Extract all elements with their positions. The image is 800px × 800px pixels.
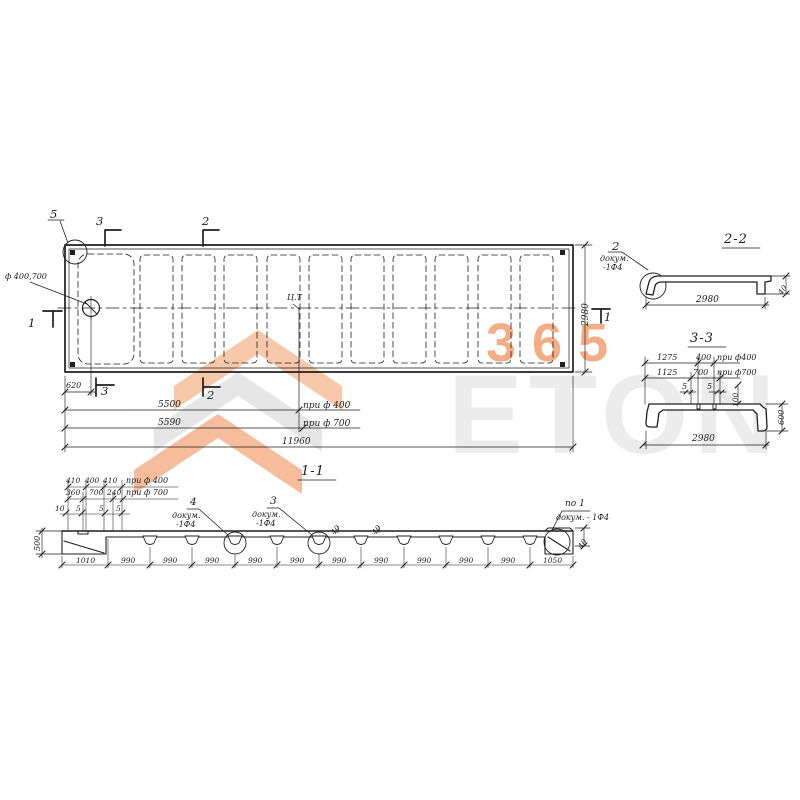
dim-240: 240 [107, 488, 121, 497]
callout-4-num: 4 [190, 496, 197, 508]
dim-990-2: 990 [163, 556, 177, 565]
centre-of-gravity-label: Ц.Т [287, 293, 302, 302]
section-mark-2-bottom: 2 [207, 388, 214, 402]
callout-3-line2: -1Ф4 [256, 519, 276, 528]
corner-anchors [70, 250, 565, 367]
note-700-s33: при ф700 [717, 368, 757, 377]
dim-2980-plan: 2980 [581, 303, 591, 326]
callout-2-line2: -1Ф4 [603, 263, 623, 272]
section-mark-3-bottom: 3 [101, 384, 108, 398]
dim-1010: 1010 [76, 556, 95, 565]
dim-990-7: 990 [374, 556, 388, 565]
dim-700-s11: 700 [89, 488, 103, 497]
dim-990-10: 990 [501, 556, 515, 565]
dim-990-4: 990 [248, 556, 262, 565]
dim-990-6: 990 [332, 556, 346, 565]
dim-620: 620 [66, 381, 81, 390]
dim-360: 360 [66, 488, 80, 497]
note-400-s33: при ф400 [717, 353, 757, 362]
dim-11960: 11960 [282, 437, 311, 447]
plan-view [30, 220, 610, 452]
dim-slot-b: 5 [707, 382, 712, 391]
hole-diameter-label: ф 400,700 [5, 272, 47, 281]
dim-400-a: 400 [85, 476, 99, 485]
dim-note-700: при ф 700 [303, 419, 350, 429]
section-mark-1-left: 1 [28, 316, 35, 330]
drawing-sheet: 365 ETON [0, 0, 800, 800]
dim-100: 100 [731, 393, 740, 407]
section-title-2-2: 2-2 [724, 232, 748, 247]
dim-5-c: 5 [116, 504, 121, 513]
dim-500: 500 [33, 536, 42, 551]
section-title-3-3: 3-3 [690, 331, 714, 346]
dim-600: 600 [777, 410, 786, 425]
dim-2980-s22: 2980 [696, 295, 719, 305]
section-mark-1-right: 1 [604, 310, 611, 324]
section-mark-3-top: 3 [96, 214, 103, 228]
dim-5-a: 5 [76, 504, 81, 513]
callout-po1-line1: докум. - 1Ф4 [556, 513, 609, 522]
callout-3-line1: докум. [252, 510, 280, 519]
section-title-1-1: 1-1 [301, 464, 325, 479]
note-400-s11: при ф 400 [126, 476, 168, 485]
callout-4-line2: -1Ф4 [176, 520, 196, 529]
callout-3-num: 3 [270, 495, 277, 507]
dim-1275: 1275 [657, 353, 677, 362]
dim-700-s33: 700 [693, 368, 708, 377]
dim-note-400: при ф 400 [303, 401, 350, 411]
callout-po1-num: по 1 [565, 499, 585, 509]
dim-5-b: 5 [99, 504, 104, 513]
dim-1050: 1050 [543, 556, 562, 565]
dim-5590: 5590 [158, 418, 181, 428]
dim-410-b: 410 [103, 476, 117, 485]
detail-callout-5: 5 [50, 207, 57, 221]
dim-990-5: 990 [290, 556, 304, 565]
dim-990-3: 990 [205, 556, 219, 565]
dim-990-9: 990 [459, 556, 473, 565]
dim-1125: 1125 [657, 368, 677, 377]
dim-5500: 5500 [158, 400, 181, 410]
callout-2-line1: докум. [600, 254, 628, 263]
callout-2-num: 2 [612, 239, 619, 253]
dim-2980-s33: 2980 [692, 434, 715, 444]
drawing-linework [0, 0, 800, 800]
note-700-s11: при ф 700 [126, 488, 168, 497]
dim-slot-a: 5 [682, 382, 687, 391]
callout-4-line1: докум. [172, 511, 200, 520]
dim-410-a: 410 [66, 476, 80, 485]
section-mark-2-top: 2 [202, 214, 209, 228]
dim-400-s33: 400 [696, 353, 711, 362]
dim-990-8: 990 [417, 556, 431, 565]
dim-10: 10 [55, 504, 65, 513]
dim-990-1: 990 [121, 556, 135, 565]
